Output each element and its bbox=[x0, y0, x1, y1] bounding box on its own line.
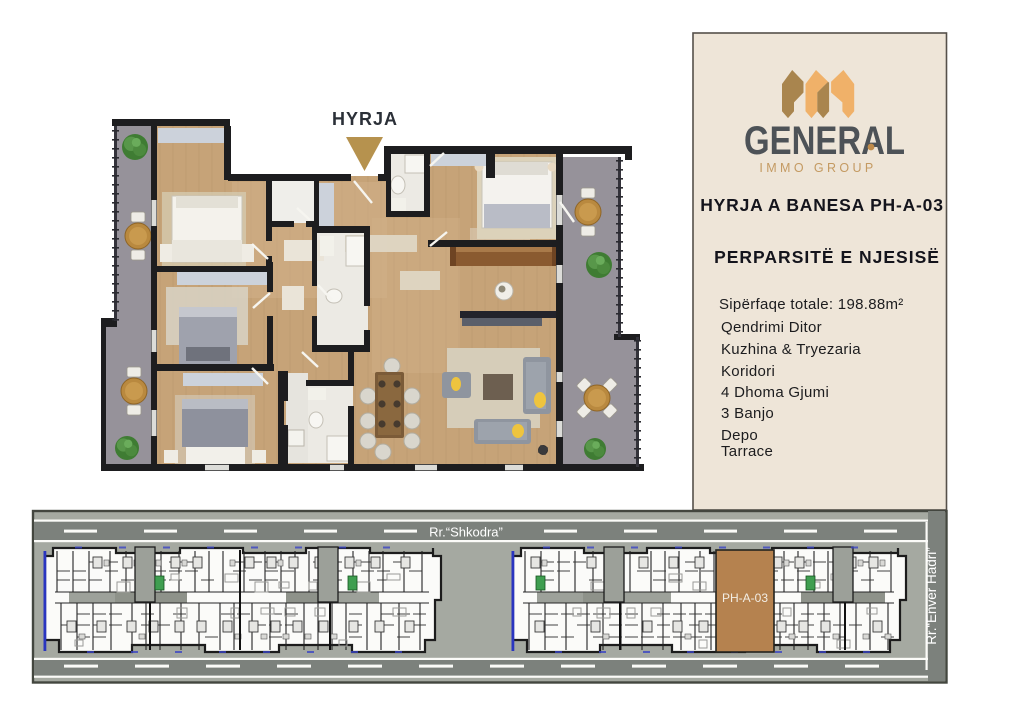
svg-text:HYRJA: HYRJA bbox=[332, 109, 398, 129]
svg-text:Qendrimi Ditor: Qendrimi Ditor bbox=[721, 319, 822, 336]
svg-text:GENERAL: GENERAL bbox=[744, 119, 905, 163]
svg-text:HYRJA A BANESA PH-A-03: HYRJA A BANESA PH-A-03 bbox=[700, 195, 944, 215]
svg-text:4 Dhoma Gjumi: 4 Dhoma Gjumi bbox=[721, 384, 829, 401]
svg-text:Koridori: Koridori bbox=[721, 363, 775, 380]
svg-text:Rr.“Shkodra”: Rr.“Shkodra” bbox=[429, 525, 503, 540]
svg-text:Sipërfaqe totale: 198.88m²: Sipërfaqe totale: 198.88m² bbox=[719, 296, 904, 313]
svg-text:Tarrace: Tarrace bbox=[721, 443, 773, 460]
svg-text:PH-A-03: PH-A-03 bbox=[722, 591, 768, 605]
svg-text:Depo: Depo bbox=[721, 427, 758, 444]
svg-text:3 Banjo: 3 Banjo bbox=[721, 405, 774, 422]
svg-text:PERPARSITË E NJESISË: PERPARSITË E NJESISË bbox=[714, 247, 940, 267]
svg-text:Rr.“Enver Hadri”: Rr.“Enver Hadri” bbox=[924, 547, 939, 645]
svg-text:IMMO GROUP: IMMO GROUP bbox=[759, 161, 876, 175]
svg-text:Kuzhina & Tryezaria: Kuzhina & Tryezaria bbox=[721, 341, 861, 358]
